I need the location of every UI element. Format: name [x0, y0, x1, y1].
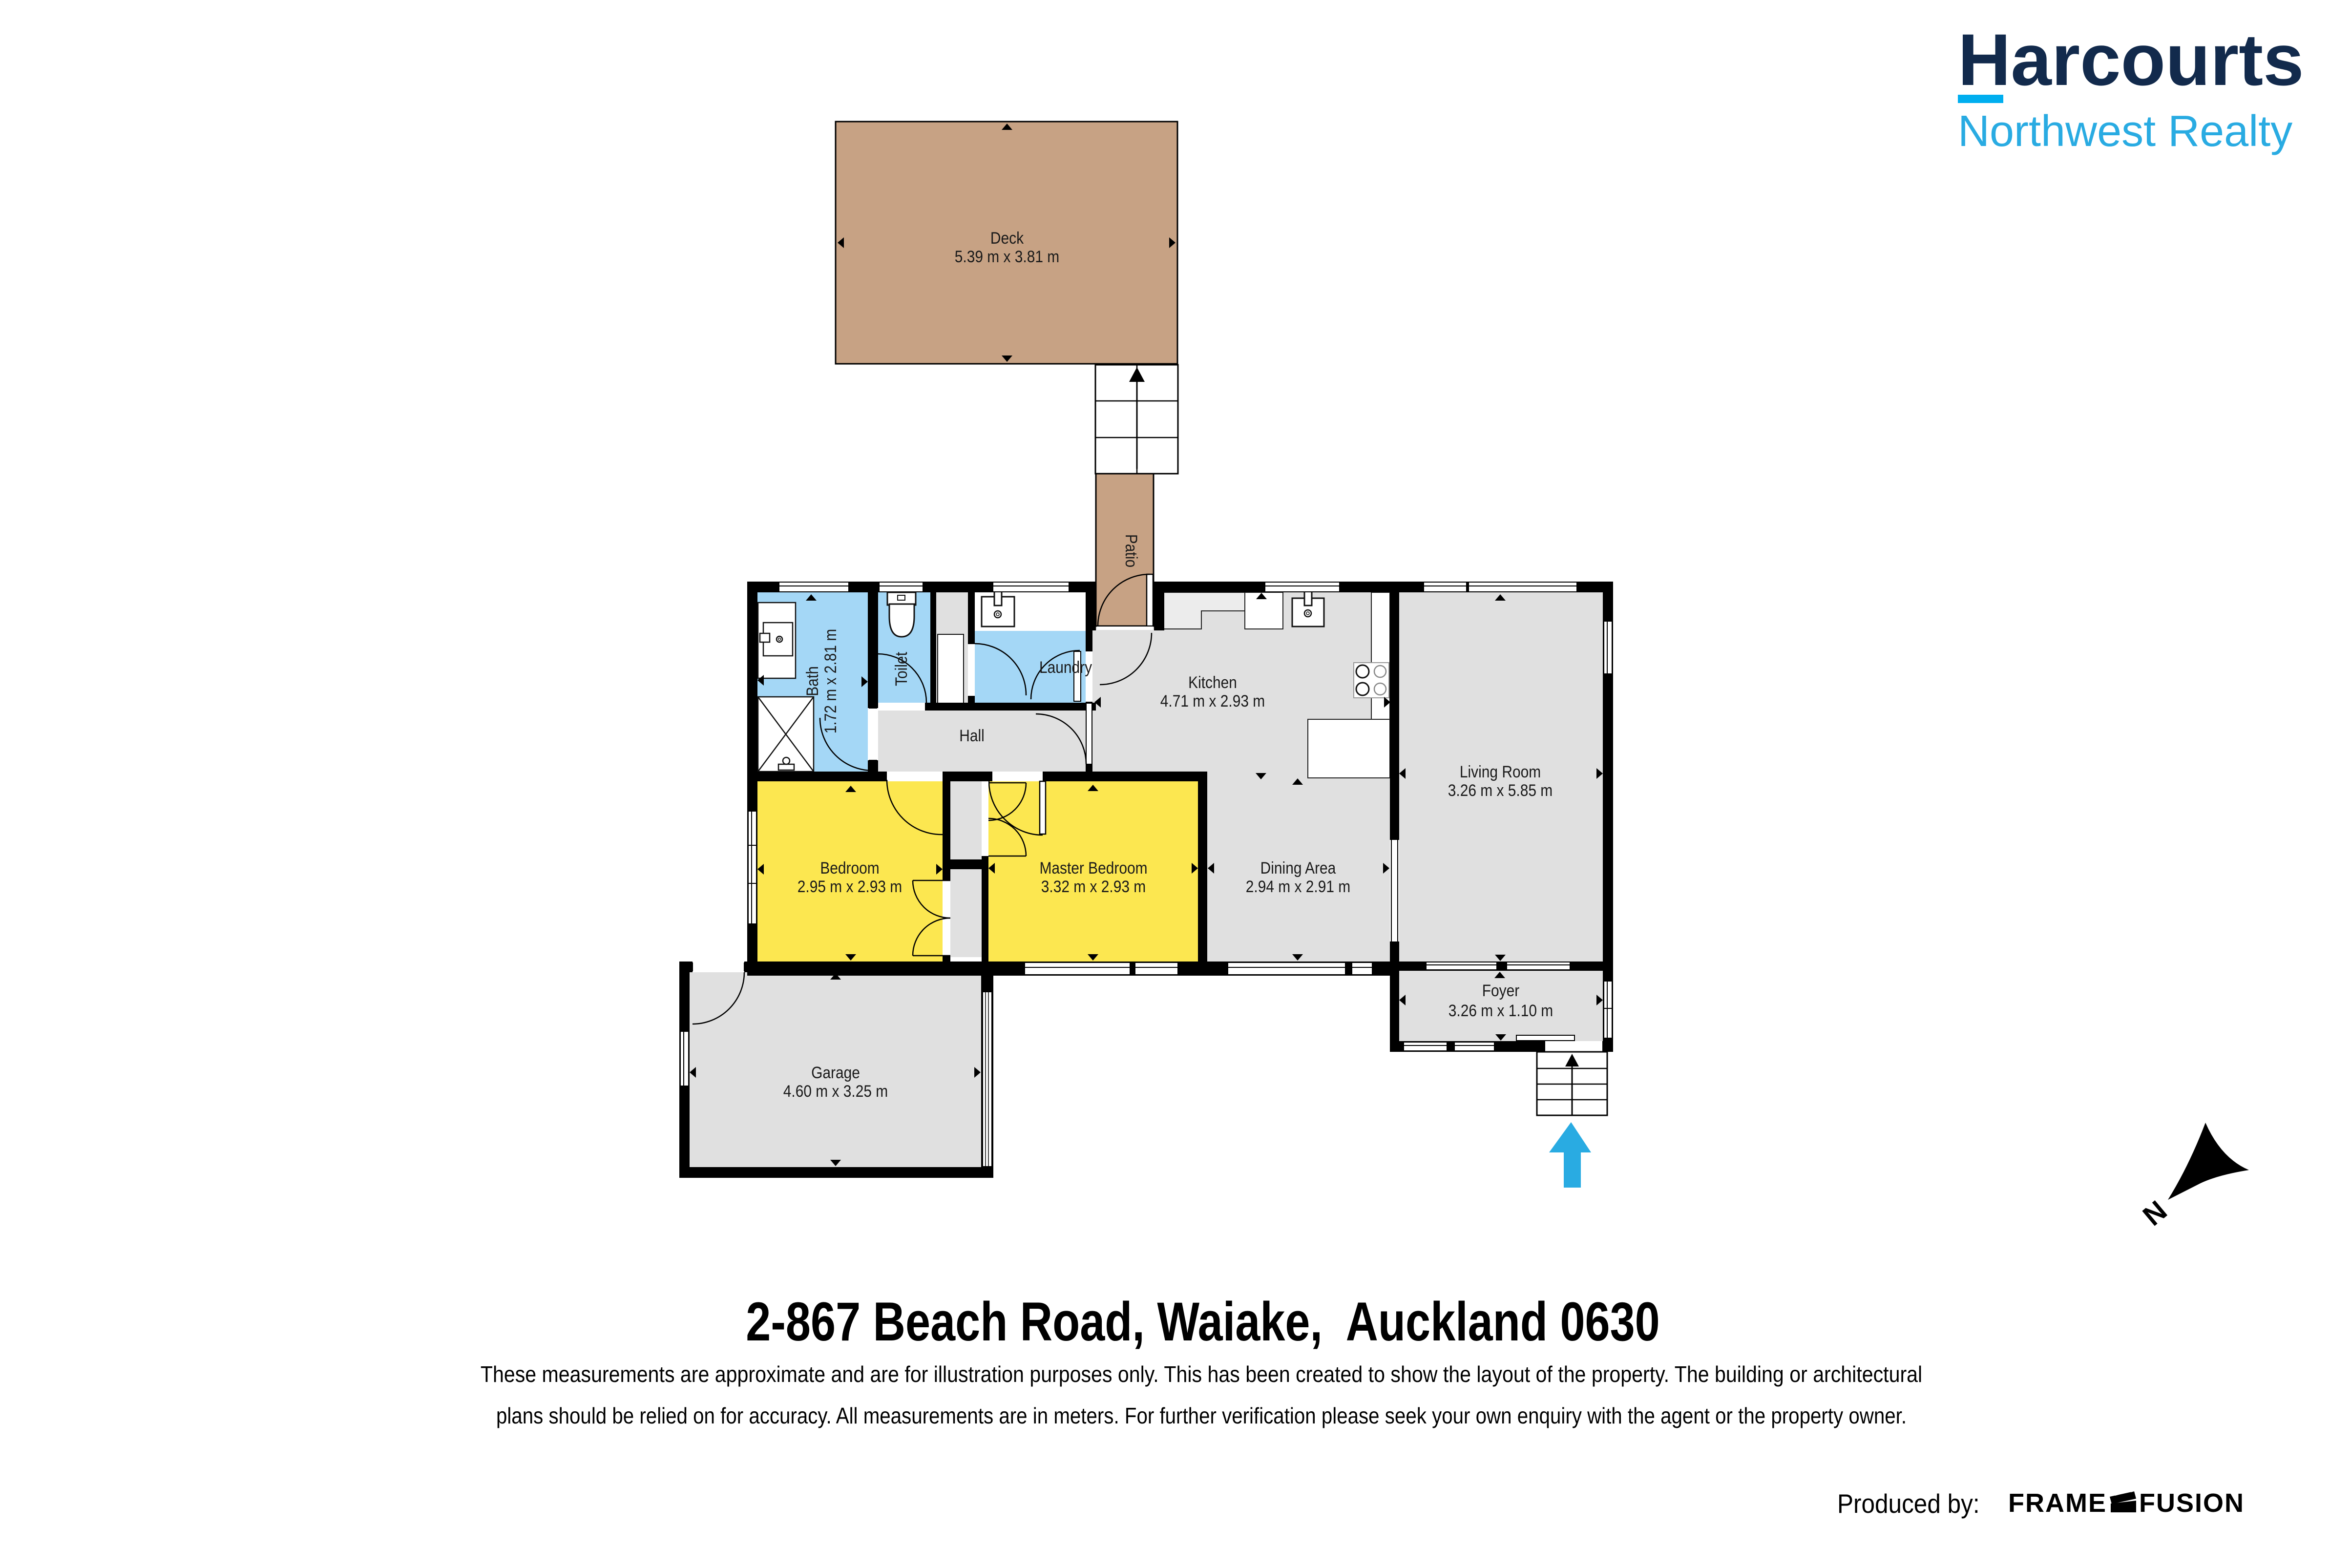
svg-text:3.26 m x 5.85 m: 3.26 m x 5.85 m: [1448, 781, 1553, 799]
svg-text:Produced by:: Produced by:: [1837, 1489, 1980, 1519]
svg-text:Bath: Bath: [803, 666, 821, 696]
svg-text:5.39 m x 3.81 m: 5.39 m x 3.81 m: [955, 247, 1059, 266]
svg-text:Foyer: Foyer: [1482, 981, 1520, 1000]
svg-text:Bedroom: Bedroom: [820, 858, 879, 877]
svg-text:Toilet: Toilet: [892, 652, 910, 686]
svg-text:Deck: Deck: [990, 229, 1024, 247]
svg-text:Garage: Garage: [811, 1063, 860, 1082]
svg-text:Living Room: Living Room: [1460, 762, 1541, 781]
svg-text:1.72 m x 2.81 m: 1.72 m x 2.81 m: [821, 629, 840, 733]
svg-text:Kitchen: Kitchen: [1188, 673, 1237, 691]
svg-text:2-867 Beach Road, Waiake, Auc: 2-867 Beach Road, Waiake, Auckland 0630: [746, 1291, 1659, 1352]
svg-text:Master Bedroom: Master Bedroom: [1039, 858, 1147, 877]
svg-text:3.32 m x 2.93 m: 3.32 m x 2.93 m: [1041, 877, 1146, 896]
svg-text:4.71 m x 2.93 m: 4.71 m x 2.93 m: [1160, 691, 1265, 710]
svg-text:FUSION: FUSION: [2139, 1488, 2245, 1518]
svg-text:Harcourts: Harcourts: [1958, 19, 2304, 101]
svg-text:3.26 m x 1.10 m: 3.26 m x 1.10 m: [1448, 1001, 1553, 1020]
svg-text:Laundry: Laundry: [1039, 658, 1092, 676]
svg-text:Hall: Hall: [959, 726, 985, 745]
svg-text:2.95 m x 2.93 m: 2.95 m x 2.93 m: [798, 877, 902, 896]
svg-text:Patio: Patio: [1122, 534, 1141, 567]
svg-text:4.60 m x 3.25 m: 4.60 m x 3.25 m: [783, 1082, 888, 1100]
svg-text:FRAME: FRAME: [2008, 1488, 2107, 1518]
svg-text:These measurements are approxi: These measurements are approximate and a…: [481, 1362, 1922, 1387]
svg-text:Northwest Realty: Northwest Realty: [1958, 107, 2292, 156]
svg-text:2.94 m x 2.91 m: 2.94 m x 2.91 m: [1246, 877, 1350, 896]
svg-text:Dining Area: Dining Area: [1260, 858, 1336, 877]
svg-text:plans should be relied on for: plans should be relied on for accuracy. …: [496, 1404, 1907, 1429]
